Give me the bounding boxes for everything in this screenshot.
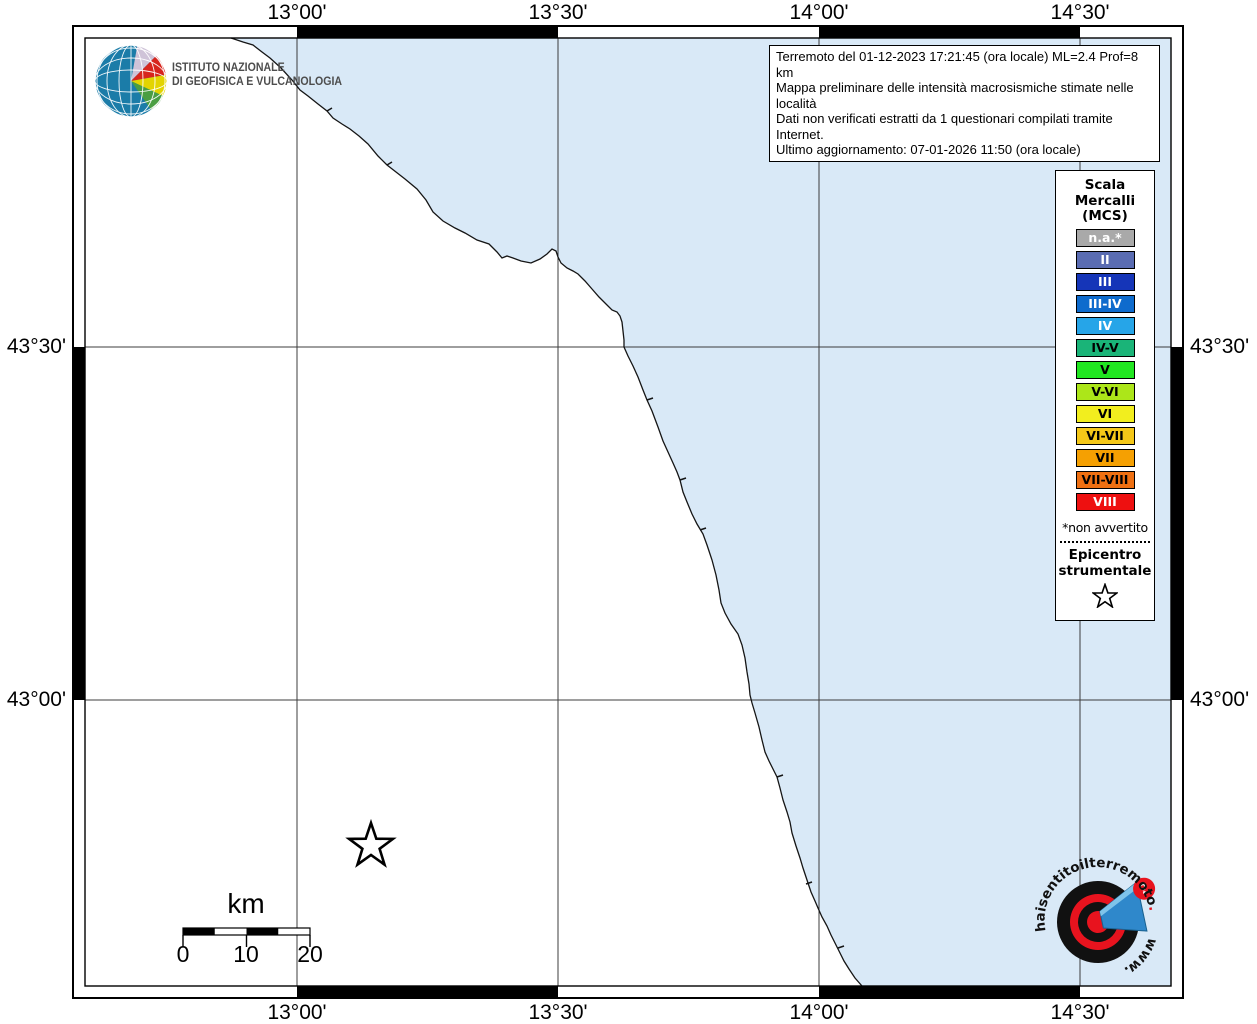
axis-label-right-2: 43°00'	[1190, 688, 1249, 712]
ingv-wordmark-line2: DI GEOFISICA E VULCANOLOGIA	[172, 75, 342, 89]
ingv-wordmark: ISTITUTO NAZIONALE DI GEOFISICA E VULCAN…	[172, 61, 342, 89]
legend-swatch-iv-v: IV-V	[1076, 339, 1135, 357]
legend-swatch-n-a-: n.a.*	[1076, 229, 1135, 247]
axis-label-bottom-1: 13°00'	[267, 1001, 326, 1024]
legend-swatch-v: V	[1076, 361, 1135, 379]
legend-footnote: *non avvertito	[1056, 520, 1154, 535]
legend-swatch-vi-vii: VI-VII	[1076, 427, 1135, 445]
seismic-intensity-map-page: ? haisentitoilterremoto.it www. 13°00' 1…	[0, 0, 1257, 1024]
info-line-data: Dati non verificati estratti da 1 questi…	[776, 111, 1153, 142]
epicenter-label-line1: Epicentro	[1056, 547, 1154, 563]
scale-bar-unit: km	[227, 888, 264, 920]
scale-tick-10: 10	[233, 941, 259, 968]
axis-label-bottom-4: 14°30'	[1050, 1001, 1109, 1024]
legend-swatch-ii: II	[1076, 251, 1135, 269]
info-line-map: Mappa preliminare delle intensità macros…	[776, 80, 1153, 111]
epicenter-star-icon	[349, 823, 393, 865]
legend-swatch-viii: VIII	[1076, 493, 1135, 511]
legend-swatch-iii-iv: III-IV	[1076, 295, 1135, 313]
ingv-wordmark-line1: ISTITUTO NAZIONALE	[172, 61, 342, 75]
mercalli-scale-legend: Scala Mercalli (MCS) n.a.*IIIIIIII-IVIVI…	[1055, 170, 1155, 621]
earthquake-info-box: Terremoto del 01-12-2023 17:21:45 (ora l…	[769, 45, 1160, 162]
legend-title-line2: Mercalli	[1056, 194, 1154, 210]
epicenter-label-line2: strumentale	[1056, 563, 1154, 579]
legend-title-line1: Scala	[1056, 178, 1154, 194]
legend-epicenter-star-icon	[1092, 583, 1118, 608]
axis-label-right-1: 43°30'	[1190, 335, 1249, 359]
info-line-event: Terremoto del 01-12-2023 17:21:45 (ora l…	[776, 49, 1153, 80]
scale-tick-0: 0	[177, 941, 190, 968]
legend-divider	[1060, 541, 1150, 543]
axis-label-top-2: 13°30'	[528, 1, 587, 25]
axis-label-left-2: 43°00'	[0, 688, 66, 712]
legend-swatch-iii: III	[1076, 273, 1135, 291]
info-line-update: Ultimo aggiornamento: 07-01-2026 11:50 (…	[776, 142, 1153, 158]
ingv-globe-icon	[95, 45, 167, 117]
axis-label-top-4: 14°30'	[1050, 1, 1109, 25]
axis-label-top-3: 14°00'	[789, 1, 848, 25]
legend-swatch-vi: VI	[1076, 405, 1135, 423]
axis-label-bottom-3: 14°00'	[789, 1001, 848, 1024]
axis-label-left-1: 43°30'	[0, 335, 66, 359]
legend-swatch-vii: VII	[1076, 449, 1135, 467]
legend-star-wrap	[1056, 583, 1154, 612]
legend-swatch-iv: IV	[1076, 317, 1135, 335]
legend-swatch-v-vi: V-VI	[1076, 383, 1135, 401]
axis-label-bottom-2: 13°30'	[528, 1001, 587, 1024]
legend-swatch-vii-viii: VII-VIII	[1076, 471, 1135, 489]
axis-label-top-1: 13°00'	[267, 1, 326, 25]
legend-title-line3: (MCS)	[1056, 209, 1154, 225]
scale-tick-20: 20	[297, 941, 323, 968]
legend-items: n.a.*IIIIIIII-IVIVIV-VVV-VIVIVI-VIIVIIVI…	[1056, 229, 1154, 511]
